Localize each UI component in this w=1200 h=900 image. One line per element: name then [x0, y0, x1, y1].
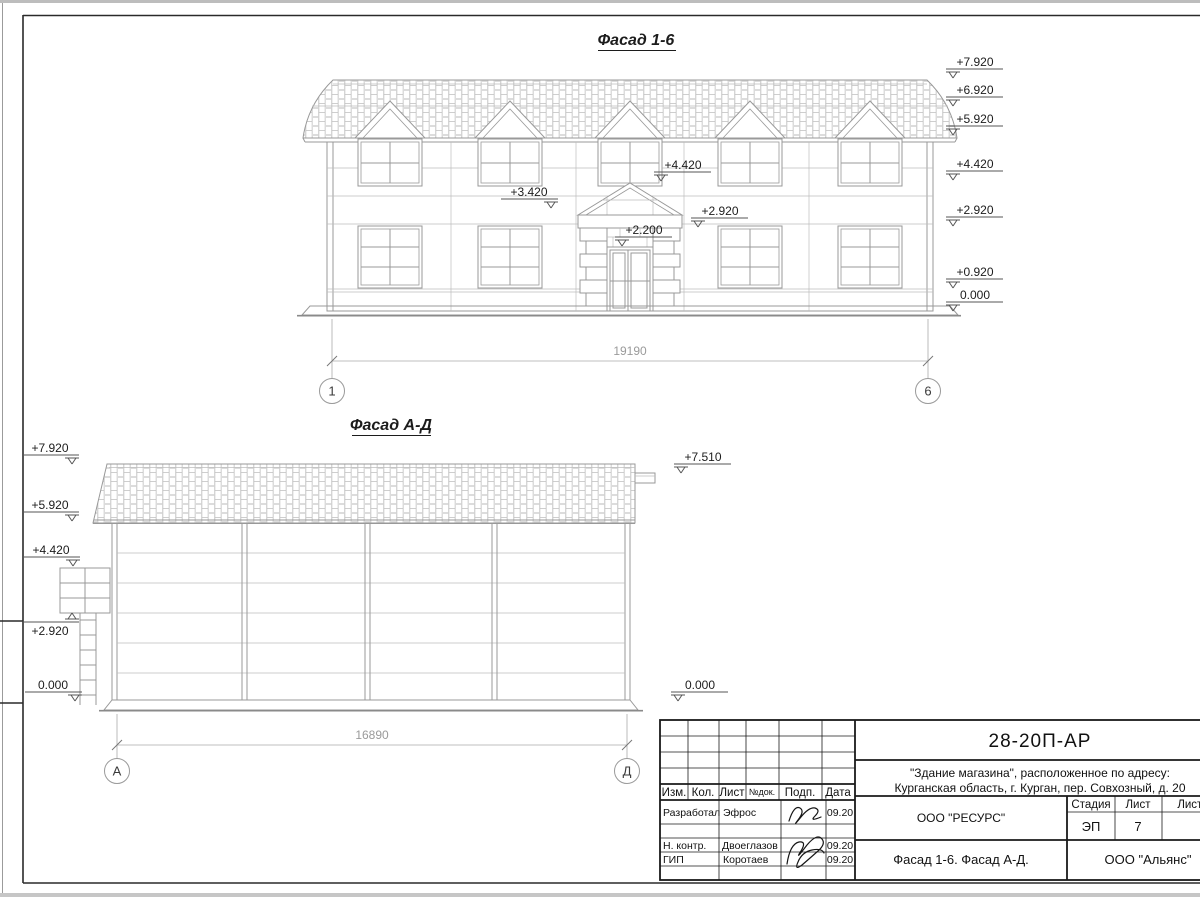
row-date: 09.20: [827, 840, 853, 852]
elevation-mark: +0.920: [946, 265, 1003, 288]
elevation-marks-right: +7.920 +6.920 +5.920 +4.420 +2.920 +0.92…: [946, 55, 1003, 311]
col-list: Лист: [720, 787, 746, 799]
svg-text:+6.920: +6.920: [956, 83, 993, 97]
row-name: Двоеглазов: [722, 840, 778, 852]
row-role: Н. контр.: [663, 840, 706, 852]
svg-text:+4.420: +4.420: [664, 158, 701, 172]
col-kol: Кол.: [692, 787, 715, 799]
project-line1: "Здание магазина", расположенное по адре…: [910, 766, 1170, 780]
dimension-value: 19190: [613, 344, 647, 358]
svg-text:0.000: 0.000: [38, 678, 68, 692]
elevation-mark: +6.920: [946, 83, 1003, 106]
elevation-mark: +4.420: [946, 157, 1003, 180]
roof-pipe: [635, 473, 655, 483]
facade-1-6-drawing: Фасад 1-6: [297, 32, 1003, 404]
facade-a-d-drawing: Фасад А-Д: [22, 417, 731, 784]
svg-text:1: 1: [328, 384, 335, 399]
row-name: Эфрос: [723, 807, 756, 819]
dimension-19190: 19190: [327, 319, 933, 378]
svg-text:А: А: [113, 764, 122, 779]
doc-number: 28-20П-АР: [989, 731, 1092, 752]
axis-bubble-a: А: [105, 759, 130, 784]
elevation-mark: +2.920: [22, 613, 79, 638]
elevation-mark: 0.000: [671, 678, 728, 701]
svg-text:+5.920: +5.920: [956, 112, 993, 126]
company: ООО "Альянс": [1105, 852, 1192, 867]
organization: ООО "РЕСУРС": [917, 811, 1005, 825]
elevation-marks-right: +7.510 0.000: [671, 450, 731, 701]
sheet-canvas: Фасад 1-6: [0, 0, 1200, 900]
stage-value: ЭП: [1082, 819, 1101, 834]
svg-text:+2.920: +2.920: [956, 203, 993, 217]
svg-text:+2.200: +2.200: [625, 223, 662, 237]
facade-1-6-title: Фасад 1-6: [598, 32, 675, 49]
svg-text:+5.920: +5.920: [31, 498, 68, 512]
drawing-sheet: { "sheet": { "doc_number": "28-20П-АР", …: [0, 0, 1200, 900]
elevation-mark: 0.000: [25, 678, 82, 701]
elevation-mark: +7.920: [946, 55, 1003, 78]
signature: [789, 808, 821, 824]
svg-text:+0.920: +0.920: [956, 265, 993, 279]
plinth-a-d: [99, 700, 643, 711]
row-name: Коротаев: [723, 854, 769, 866]
svg-text:+2.920: +2.920: [701, 204, 738, 218]
svg-text:+7.510: +7.510: [684, 450, 721, 464]
svg-text:Д: Д: [623, 764, 632, 779]
elevation-mark: +7.510: [674, 450, 731, 473]
svg-text:6: 6: [924, 384, 931, 399]
svg-text:+2.920: +2.920: [31, 624, 68, 638]
sheet-number: 7: [1134, 819, 1141, 834]
sheet-label: Лист: [1126, 799, 1152, 811]
col-izm: Изм.: [662, 787, 687, 799]
svg-text:0.000: 0.000: [685, 678, 715, 692]
axis-bubble-d: Д: [615, 759, 640, 784]
elevation-mark: +4.420: [23, 543, 80, 566]
svg-text:+7.920: +7.920: [31, 441, 68, 455]
roof-a-d: [93, 464, 635, 524]
entrance-door: [607, 247, 653, 311]
elevation-mark: 0.000: [946, 288, 1003, 311]
col-dok: №док.: [749, 787, 775, 797]
sheets-label: Листов: [1177, 799, 1200, 811]
row-date: 09.20: [827, 807, 853, 819]
svg-text:+3.420: +3.420: [510, 185, 547, 199]
elevation-mark: +7.920: [22, 441, 79, 464]
svg-text:+7.920: +7.920: [956, 55, 993, 69]
svg-text:+4.420: +4.420: [956, 157, 993, 171]
svg-text:0.000: 0.000: [960, 288, 990, 302]
dimension-16890: 16890: [112, 714, 632, 758]
svg-text:+4.420: +4.420: [32, 543, 69, 557]
elevation-mark: +5.920: [22, 498, 79, 521]
project-line2: Курганская область, г. Курган, пер. Совх…: [894, 781, 1185, 795]
axis-bubble-1: 1: [320, 379, 345, 404]
facade-a-d-title: Фасад А-Д: [350, 417, 432, 434]
col-podp: Подп.: [785, 787, 816, 799]
elevation-mark: +2.920: [946, 203, 1003, 226]
row-role: Разработал: [663, 807, 720, 819]
axis-bubble-6: 6: [916, 379, 941, 404]
row-role: ГИП: [663, 854, 684, 866]
stage-label: Стадия: [1071, 799, 1110, 811]
dimension-value: 16890: [355, 728, 389, 742]
wall-a-d: [112, 524, 630, 701]
sheet-title: Фасад 1-6. Фасад А-Д.: [893, 852, 1029, 867]
title-block: 28-20П-АР "Здание магазина", расположенн…: [660, 720, 1200, 880]
chimney-box: [60, 568, 110, 613]
row-date: 09.20: [827, 854, 853, 866]
col-data: Дата: [825, 787, 851, 799]
ladder: [80, 613, 96, 705]
